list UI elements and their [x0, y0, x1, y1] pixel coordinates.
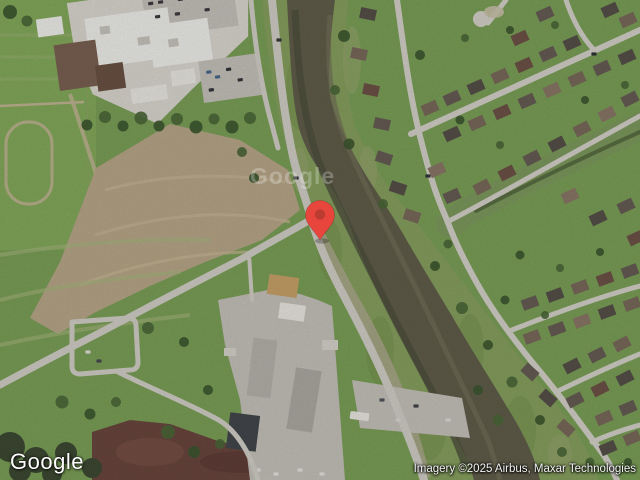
satellite-imagery: [0, 0, 640, 480]
satellite-map[interactable]: Google Google Imagery ©2025 Airbus, Maxa…: [0, 0, 640, 480]
imagery-attribution: Imagery ©2025 Airbus, Maxar Technologies: [414, 463, 636, 475]
google-logo[interactable]: Google: [10, 449, 84, 475]
